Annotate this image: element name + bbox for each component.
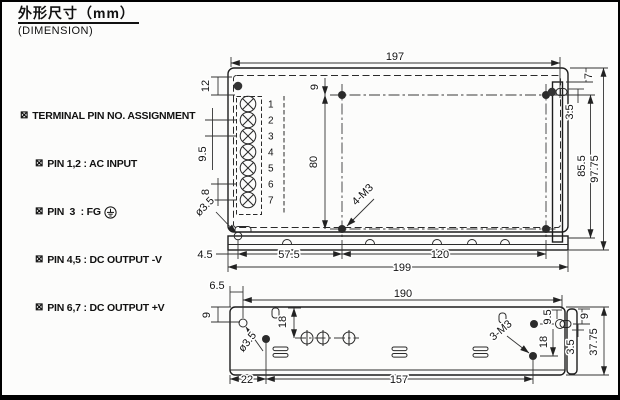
terminal-block: 1 2 3 4 5 6 7 [237, 96, 285, 215]
note-heading-text: TERMINAL PIN NO. ASSIGNMENT [32, 108, 195, 124]
dim-label-37p75: 37.75 [588, 328, 600, 356]
dim-label-4m3: 4-M3 [350, 182, 376, 208]
reference-mark-icon: ⊠ [35, 204, 43, 220]
dim-label-9: 9 [309, 84, 321, 90]
top-view: 1 2 3 4 5 6 7 [193, 51, 609, 274]
note-pin-45-text: PIN 4,5 : DC OUTPUT -V [47, 252, 162, 268]
dim-label-7: 7 [583, 73, 595, 79]
pin-number-7: 7 [268, 196, 274, 207]
note-pin-45: ⊠PIN 4,5 : DC OUTPUT -V [35, 252, 195, 268]
note-pin-12-text: PIN 1,2 : AC INPUT [47, 156, 137, 172]
dim-label-18-left: 18 [277, 316, 289, 328]
dim-label-9p5: 9.5 [197, 146, 209, 161]
note-pin-3: ⊠PIN 3 : FG [35, 204, 195, 220]
dim-label-190: 190 [394, 288, 412, 300]
pin-number-3: 3 [268, 132, 274, 143]
bottom-view: 6.5 190 9 18 ø3.5 22 157 [201, 280, 609, 386]
dim-label-18-right: 18 [538, 336, 550, 348]
dim-label-57p5: 57.5 [278, 249, 299, 261]
note-pin-12: ⊠PIN 1,2 : AC INPUT [35, 156, 195, 172]
vent-slots [273, 347, 488, 357]
dim-label-9-left: 9 [201, 312, 213, 318]
mounting-hole [338, 225, 346, 233]
dim-label-157: 157 [390, 374, 408, 386]
reference-mark-icon: ⊠ [35, 252, 43, 268]
mounting-hole [542, 225, 550, 233]
cover-hidden-line [234, 76, 561, 228]
corner-screw [234, 82, 243, 91]
dim-label-12: 12 [200, 80, 212, 92]
dim-label-80: 80 [308, 156, 320, 168]
dim-label-199: 199 [393, 262, 411, 274]
pin-number-6: 6 [268, 180, 274, 191]
mounting-rail [228, 227, 568, 251]
terminal-screws [240, 96, 256, 208]
reference-mark-icon: ⊠ [35, 300, 43, 316]
mounting-hole [338, 91, 346, 99]
m3-hole [530, 320, 538, 328]
dim-label-8: 8 [200, 189, 212, 195]
pin-number-1: 1 [268, 100, 274, 111]
title-block: 外形尺寸（mm） (DIMENSION) [18, 5, 139, 37]
dim-label-9p5-right: 9.5 [542, 309, 554, 324]
dim-label-85p5: 85.5 [576, 155, 588, 176]
dim-label-4p5: 4.5 [197, 249, 212, 261]
dim-label-197: 197 [386, 51, 404, 63]
dim-label-3m3: 3-M3 [488, 318, 515, 343]
page-title: 外形尺寸（mm） [18, 5, 139, 24]
dim-label-97p75: 97.75 [589, 155, 601, 183]
note-pin-67: ⊠PIN 6,7 : DC OUTPUT +V [35, 300, 195, 316]
terminal-pin-notes: ⊠TERMINAL PIN NO. ASSIGNMENT ⊠PIN 1,2 : … [20, 76, 195, 348]
dim-label-dia3p5: ø3.5 [193, 195, 217, 219]
note-heading: ⊠TERMINAL PIN NO. ASSIGNMENT [20, 108, 195, 124]
note-pin-67-text: PIN 6,7 : DC OUTPUT +V [47, 300, 164, 316]
keyhole-slot [556, 89, 567, 96]
dim-label-3p5-bottom-right: 3.5 [565, 339, 577, 354]
pin-number-5: 5 [268, 164, 274, 175]
dim-label-120: 120 [431, 249, 449, 261]
fg-ground-icon [104, 206, 117, 219]
pin-number-4: 4 [268, 148, 274, 159]
reference-mark-icon: ⊠ [20, 108, 28, 124]
base-hole [239, 319, 247, 327]
dim-label-22: 22 [241, 374, 253, 386]
m3-hole [529, 352, 537, 360]
dim-label-dia3p5-bottom: ø3.5 [236, 330, 259, 355]
dimension-drawing-sheet: 外形尺寸（mm） (DIMENSION) ⊠TERMINAL PIN NO. A… [0, 0, 620, 400]
top-view-dimensions: 197 12 9.5 8 9 80 4-M3 [193, 51, 609, 274]
dim-label-9-right: 9 [579, 313, 591, 319]
chassis-outline [228, 68, 568, 232]
dim-label-6p5: 6.5 [209, 280, 224, 292]
pin-number-2: 2 [268, 116, 274, 127]
reference-mark-icon: ⊠ [35, 156, 43, 172]
page-subtitle: (DIMENSION) [18, 25, 139, 37]
m3-hole [262, 335, 270, 343]
dim-label-3p5-right: 3.5 [564, 104, 576, 119]
note-pin-3-text: PIN 3 : FG [47, 204, 101, 220]
